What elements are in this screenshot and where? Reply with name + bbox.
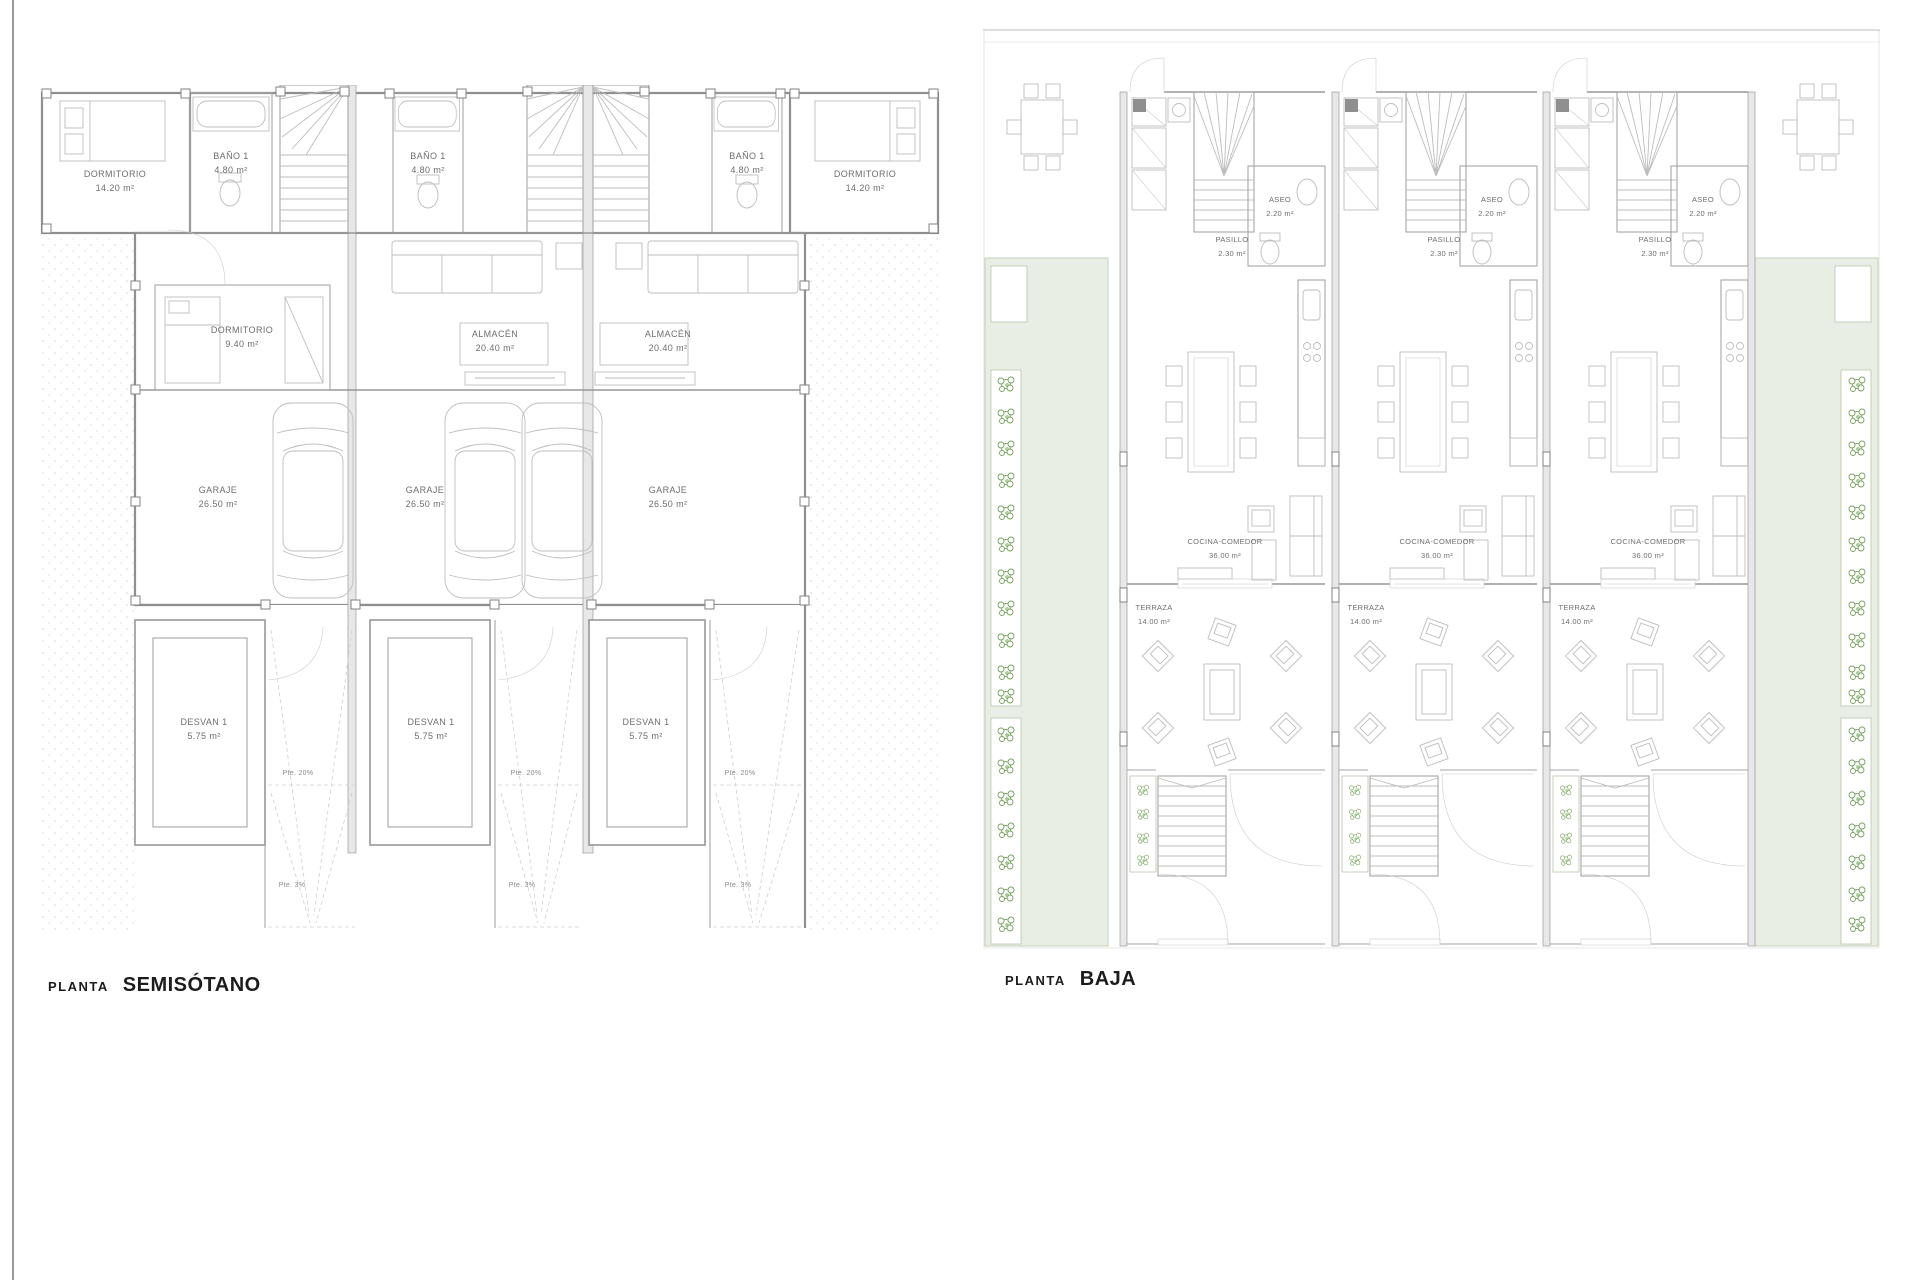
label-garaje-1: GARAJE (199, 485, 237, 495)
label-slope20-3: Pte. 20% (725, 770, 756, 777)
svg-text:4.80 m²: 4.80 m² (214, 165, 247, 175)
right-plan-title-prefix: PLANTA (1005, 973, 1066, 988)
svg-text:26.50 m²: 26.50 m² (199, 499, 238, 509)
patio-table-left (1007, 84, 1077, 170)
left-plan-title: PLANTA SEMISÓTANO (48, 974, 261, 997)
site-boundary (983, 30, 1880, 948)
svg-text:14.20 m²: 14.20 m² (96, 183, 135, 193)
garden-strip-left (985, 258, 1108, 946)
page-frame-left-line (12, 0, 14, 1280)
svg-text:26.50 m²: 26.50 m² (406, 499, 445, 509)
right-plan-title-name: BAJA (1080, 968, 1136, 991)
label-desvan-1: DESVAN 1 (180, 717, 227, 727)
svg-text:26.50 m²: 26.50 m² (649, 499, 688, 509)
label-desvan-2: DESVAN 1 (407, 717, 454, 727)
label-garaje-3: GARAJE (649, 485, 687, 495)
label-desvan-3: DESVAN 1 (622, 717, 669, 727)
svg-text:5.75 m²: 5.75 m² (187, 731, 220, 741)
label-bano-3: BAÑO 1 (729, 151, 764, 161)
svg-text:5.75 m²: 5.75 m² (629, 731, 662, 741)
label-bano-2: BAÑO 1 (410, 151, 445, 161)
label-slope20-2: Pte. 20% (511, 770, 542, 777)
label-slope3-2: Pte. 3% (509, 882, 536, 889)
svg-text:5.75 m²: 5.75 m² (414, 731, 447, 741)
garden-strip-right (1755, 258, 1878, 946)
svg-text:4.80 m²: 4.80 m² (730, 165, 763, 175)
patio-table-right (1783, 84, 1853, 170)
label-almacen-3: ALMACÉN (645, 329, 691, 339)
svg-text:9.40 m²: 9.40 m² (225, 339, 258, 349)
svg-text:4.80 m²: 4.80 m² (411, 165, 444, 175)
label-slope20-1: Pte. 20% (283, 770, 314, 777)
label-almacen-2: ALMACÉN (472, 329, 518, 339)
label-dormitorio-right: DORMITORIO (834, 169, 896, 179)
label-dormitorio-small: DORMITORIO (211, 325, 273, 335)
svg-text:14.20 m²: 14.20 m² (846, 183, 885, 193)
staircase-unit1 (280, 85, 348, 233)
right-plan-title: PLANTA BAJA (1005, 968, 1136, 991)
closing-party-wall (1748, 92, 1755, 946)
svg-text:20.40 m²: 20.40 m² (476, 343, 515, 353)
left-plan-title-prefix: PLANTA (48, 979, 109, 994)
label-slope3-3: Pte. 3% (725, 882, 752, 889)
bathroom-2 (393, 93, 463, 233)
left-plan-title-name: SEMISÓTANO (123, 974, 261, 997)
label-dormitorio-left: DORMITORIO (84, 169, 146, 179)
label-bano-1: BAÑO 1 (213, 151, 248, 161)
house-unit-2 (1332, 58, 1537, 946)
bathroom-1 (190, 93, 272, 233)
house-unit-3 (1543, 58, 1748, 946)
svg-text:20.40 m²: 20.40 m² (649, 343, 688, 353)
label-slope3-1: Pte. 3% (279, 882, 306, 889)
label-garaje-2: GARAJE (406, 485, 444, 495)
floorplan-semisotano: DORMITORIO 14.20 m² BAÑO 1 4.80 m² BAÑO … (40, 85, 940, 930)
floorplan-baja: ASEO 2.20 m² PASILLO 2.30 m² COCINA-COME… (983, 28, 1880, 950)
bathroom-3 (712, 93, 782, 233)
house-unit-1 (1120, 58, 1325, 946)
